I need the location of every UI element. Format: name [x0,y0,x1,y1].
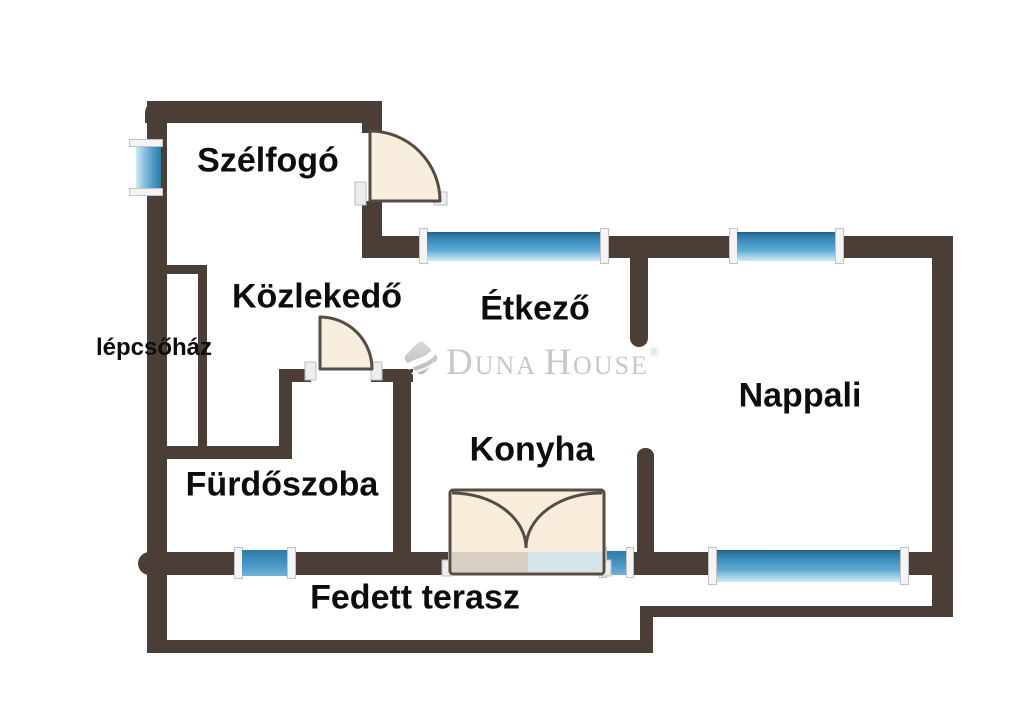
room-label-lepcsohaz: lépcsőház [96,334,212,362]
wall-outer-bottom-b [288,552,448,575]
window-glass [737,232,837,261]
room-label-konyha: Konyha [470,431,595,470]
window-frame-cap [900,547,909,585]
wall-stub-konyha-nappali [637,448,654,553]
room-label-kozlekedo: Közlekedő [232,278,402,317]
floorplan-canvas: DUNA HOUSE® [0,0,1024,720]
window-glass [242,550,288,576]
wm-letter-d: D [446,342,475,383]
entrance-door-swing [355,131,447,205]
window-frame-cap [129,188,163,196]
window-frame-cap [835,228,844,264]
wall-outer-bottom-d [903,552,953,575]
wall-outer-bottom-c [633,552,717,575]
window-glass [717,550,903,582]
wall-terrace-right [640,606,947,617]
wall-terrace-bottom [147,640,653,653]
wm-una: UNA [475,351,537,380]
window-glass [607,551,627,575]
wall-kozlekedo-furdoszoba [147,446,292,459]
duna-house-watermark-text: DUNA HOUSE® [446,341,659,384]
window-frame-cap [708,547,717,585]
window-frame-cap [129,139,163,147]
wall-outer-bottom-a [138,552,242,575]
wall-stub-etkezo-nappali [630,258,648,347]
window-frame-cap [599,547,607,578]
wm-ouse: OUSE [573,351,649,380]
wall-furdoszoba-top-a [279,369,311,382]
window-frame-cap [626,547,634,578]
window-glass [427,232,603,261]
wall-outer-top-etkezo-b [603,236,737,258]
kitchen-double-door [442,490,611,576]
room-label-etkezo: Étkező [480,290,590,329]
duna-house-diamond-logo-icon [397,334,445,382]
wm-letter-h: H [544,342,573,383]
wall-furdoszoba-konyha [393,369,411,553]
wall-szelfogo-right-upper [362,101,382,133]
wall-furdoszoba-west [279,369,292,459]
window-frame-cap [600,228,609,264]
room-label-szelfogo: Szélfogó [197,142,339,181]
window-glass [136,147,161,188]
room-label-nappali: Nappali [739,377,862,416]
wall-outer-top-szelfogo [145,101,382,123]
window-frame-cap [287,547,296,579]
room-label-fedett-terasz: Fedett terasz [310,579,520,618]
registered-trademark-symbol: ® [649,344,659,359]
room-label-furdoszoba: Fürdőszoba [186,466,379,505]
